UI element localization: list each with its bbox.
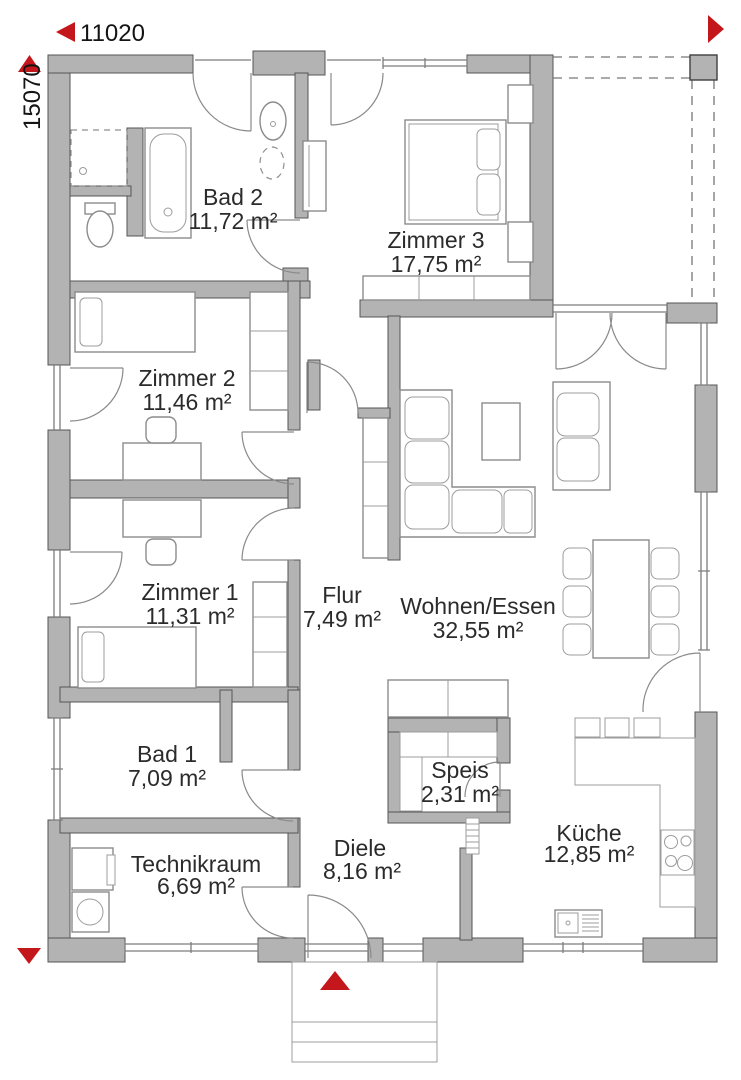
room-label-zimmer3: Zimmer 3 17,75 m² xyxy=(387,227,484,277)
desk-symbol xyxy=(123,443,201,480)
dimension-arrow-left-icon xyxy=(56,22,75,42)
stool-symbol xyxy=(634,718,660,737)
loveseat-symbol xyxy=(553,382,610,490)
furniture-flur xyxy=(363,418,388,558)
dining-table-symbol xyxy=(563,540,679,658)
coffee-table-symbol xyxy=(482,403,520,460)
svg-text:7,09 m²: 7,09 m² xyxy=(128,765,206,791)
nightstand-symbol xyxy=(508,222,533,262)
svg-text:8,16 m²: 8,16 m² xyxy=(323,858,401,884)
furniture-technikraum xyxy=(72,848,115,932)
room-label-zimmer2: Zimmer 2 11,46 m² xyxy=(138,365,235,415)
radiator-symbol xyxy=(466,818,479,854)
bed-symbol xyxy=(75,292,195,352)
stool-symbol xyxy=(605,718,629,737)
appliance-symbol xyxy=(72,848,115,890)
double-bed-symbol xyxy=(405,120,506,224)
door-terrace-left xyxy=(556,313,612,369)
furniture-wohnen xyxy=(388,382,679,717)
entrance-steps xyxy=(292,962,437,1062)
svg-text:11,31 m²: 11,31 m² xyxy=(145,603,234,629)
room-label-flur: Flur 7,49 m² xyxy=(303,582,381,632)
nightstand-symbol xyxy=(508,85,533,123)
wardrobe-symbol xyxy=(250,292,288,410)
room-label-diele: Diele 8,16 m² xyxy=(323,835,401,884)
chair-symbol xyxy=(146,539,176,565)
room-label-wohnen-essen: Wohnen/Essen 32,55 m² xyxy=(400,593,556,643)
door-terrace-right xyxy=(610,313,666,369)
svg-text:11,72 m²: 11,72 m² xyxy=(188,208,277,234)
door-technikraum xyxy=(242,887,293,938)
door-zimmer1 xyxy=(242,508,294,560)
room-label-bad1: Bad 1 7,09 m² xyxy=(128,741,206,791)
terrace-column xyxy=(690,55,717,80)
dimension-width-label: 11020 xyxy=(80,20,145,47)
room-label-kueche: Küche 12,85 m² xyxy=(544,820,635,867)
washbasin-symbol xyxy=(260,102,286,140)
window-door-zimmer1 xyxy=(70,552,122,604)
svg-text:Zimmer 1: Zimmer 1 xyxy=(141,579,238,605)
svg-text:Bad 1: Bad 1 xyxy=(137,741,197,767)
door-zimmer2 xyxy=(242,432,294,484)
toilet-symbol xyxy=(85,203,115,247)
floor-plan-page: 11020 15070 Bad 2 11,72 m² Zimmer 3 17,7… xyxy=(0,0,741,1080)
room-label-bad2: Bad 2 11,72 m² xyxy=(188,184,277,234)
cooktop-symbol xyxy=(661,830,694,875)
wardrobe-symbol xyxy=(363,418,388,558)
sink-symbol xyxy=(555,910,602,937)
desk-symbol xyxy=(123,500,201,537)
door-zimmer3-exterior xyxy=(331,73,383,125)
sideboard-symbol xyxy=(388,680,508,717)
wardrobe-symbol xyxy=(253,582,287,687)
svg-text:Bad 2: Bad 2 xyxy=(203,184,263,210)
svg-text:2,31 m²: 2,31 m² xyxy=(421,781,499,807)
svg-text:32,55 m²: 32,55 m² xyxy=(433,617,524,643)
svg-text:Zimmer 2: Zimmer 2 xyxy=(138,365,235,391)
door-bad1 xyxy=(242,770,293,821)
svg-text:Zimmer 3: Zimmer 3 xyxy=(387,227,484,253)
dimension-height-label: 15070 xyxy=(19,63,46,130)
wardrobe-row-symbol xyxy=(363,276,530,300)
door-entrance xyxy=(308,895,371,958)
chair-symbol xyxy=(146,417,176,443)
window-door-zimmer2 xyxy=(70,368,123,421)
svg-text:12,85 m²: 12,85 m² xyxy=(544,841,635,867)
svg-text:Wohnen/Essen: Wohnen/Essen xyxy=(400,593,556,619)
svg-text:7,49 m²: 7,49 m² xyxy=(303,606,381,632)
terrace xyxy=(553,55,717,302)
svg-text:17,75 m²: 17,75 m² xyxy=(391,251,482,277)
floor-plan: 11020 15070 Bad 2 11,72 m² Zimmer 3 17,7… xyxy=(0,0,741,1080)
room-label-zimmer1: Zimmer 1 11,31 m² xyxy=(141,579,238,629)
stool-symbol xyxy=(575,718,600,737)
shower-symbol xyxy=(71,130,127,186)
bathtub-symbol xyxy=(145,128,191,238)
door-bad2-exterior xyxy=(193,73,251,131)
room-label-speis: Speis 2,31 m² xyxy=(421,757,499,807)
door-kitchen-terrace xyxy=(643,653,700,712)
washing-machine-symbol xyxy=(72,892,109,932)
svg-text:Speis: Speis xyxy=(431,757,489,783)
svg-text:6,69 m²: 6,69 m² xyxy=(157,873,235,899)
bidet-symbol xyxy=(260,147,284,179)
dimension-arrow-right-icon xyxy=(708,15,724,43)
svg-text:Flur: Flur xyxy=(322,582,362,608)
dimension-arrow-down-icon xyxy=(17,948,41,964)
wardrobe-symbol xyxy=(303,141,326,211)
bed-symbol xyxy=(78,627,196,688)
svg-text:11,46 m²: 11,46 m² xyxy=(142,389,231,415)
